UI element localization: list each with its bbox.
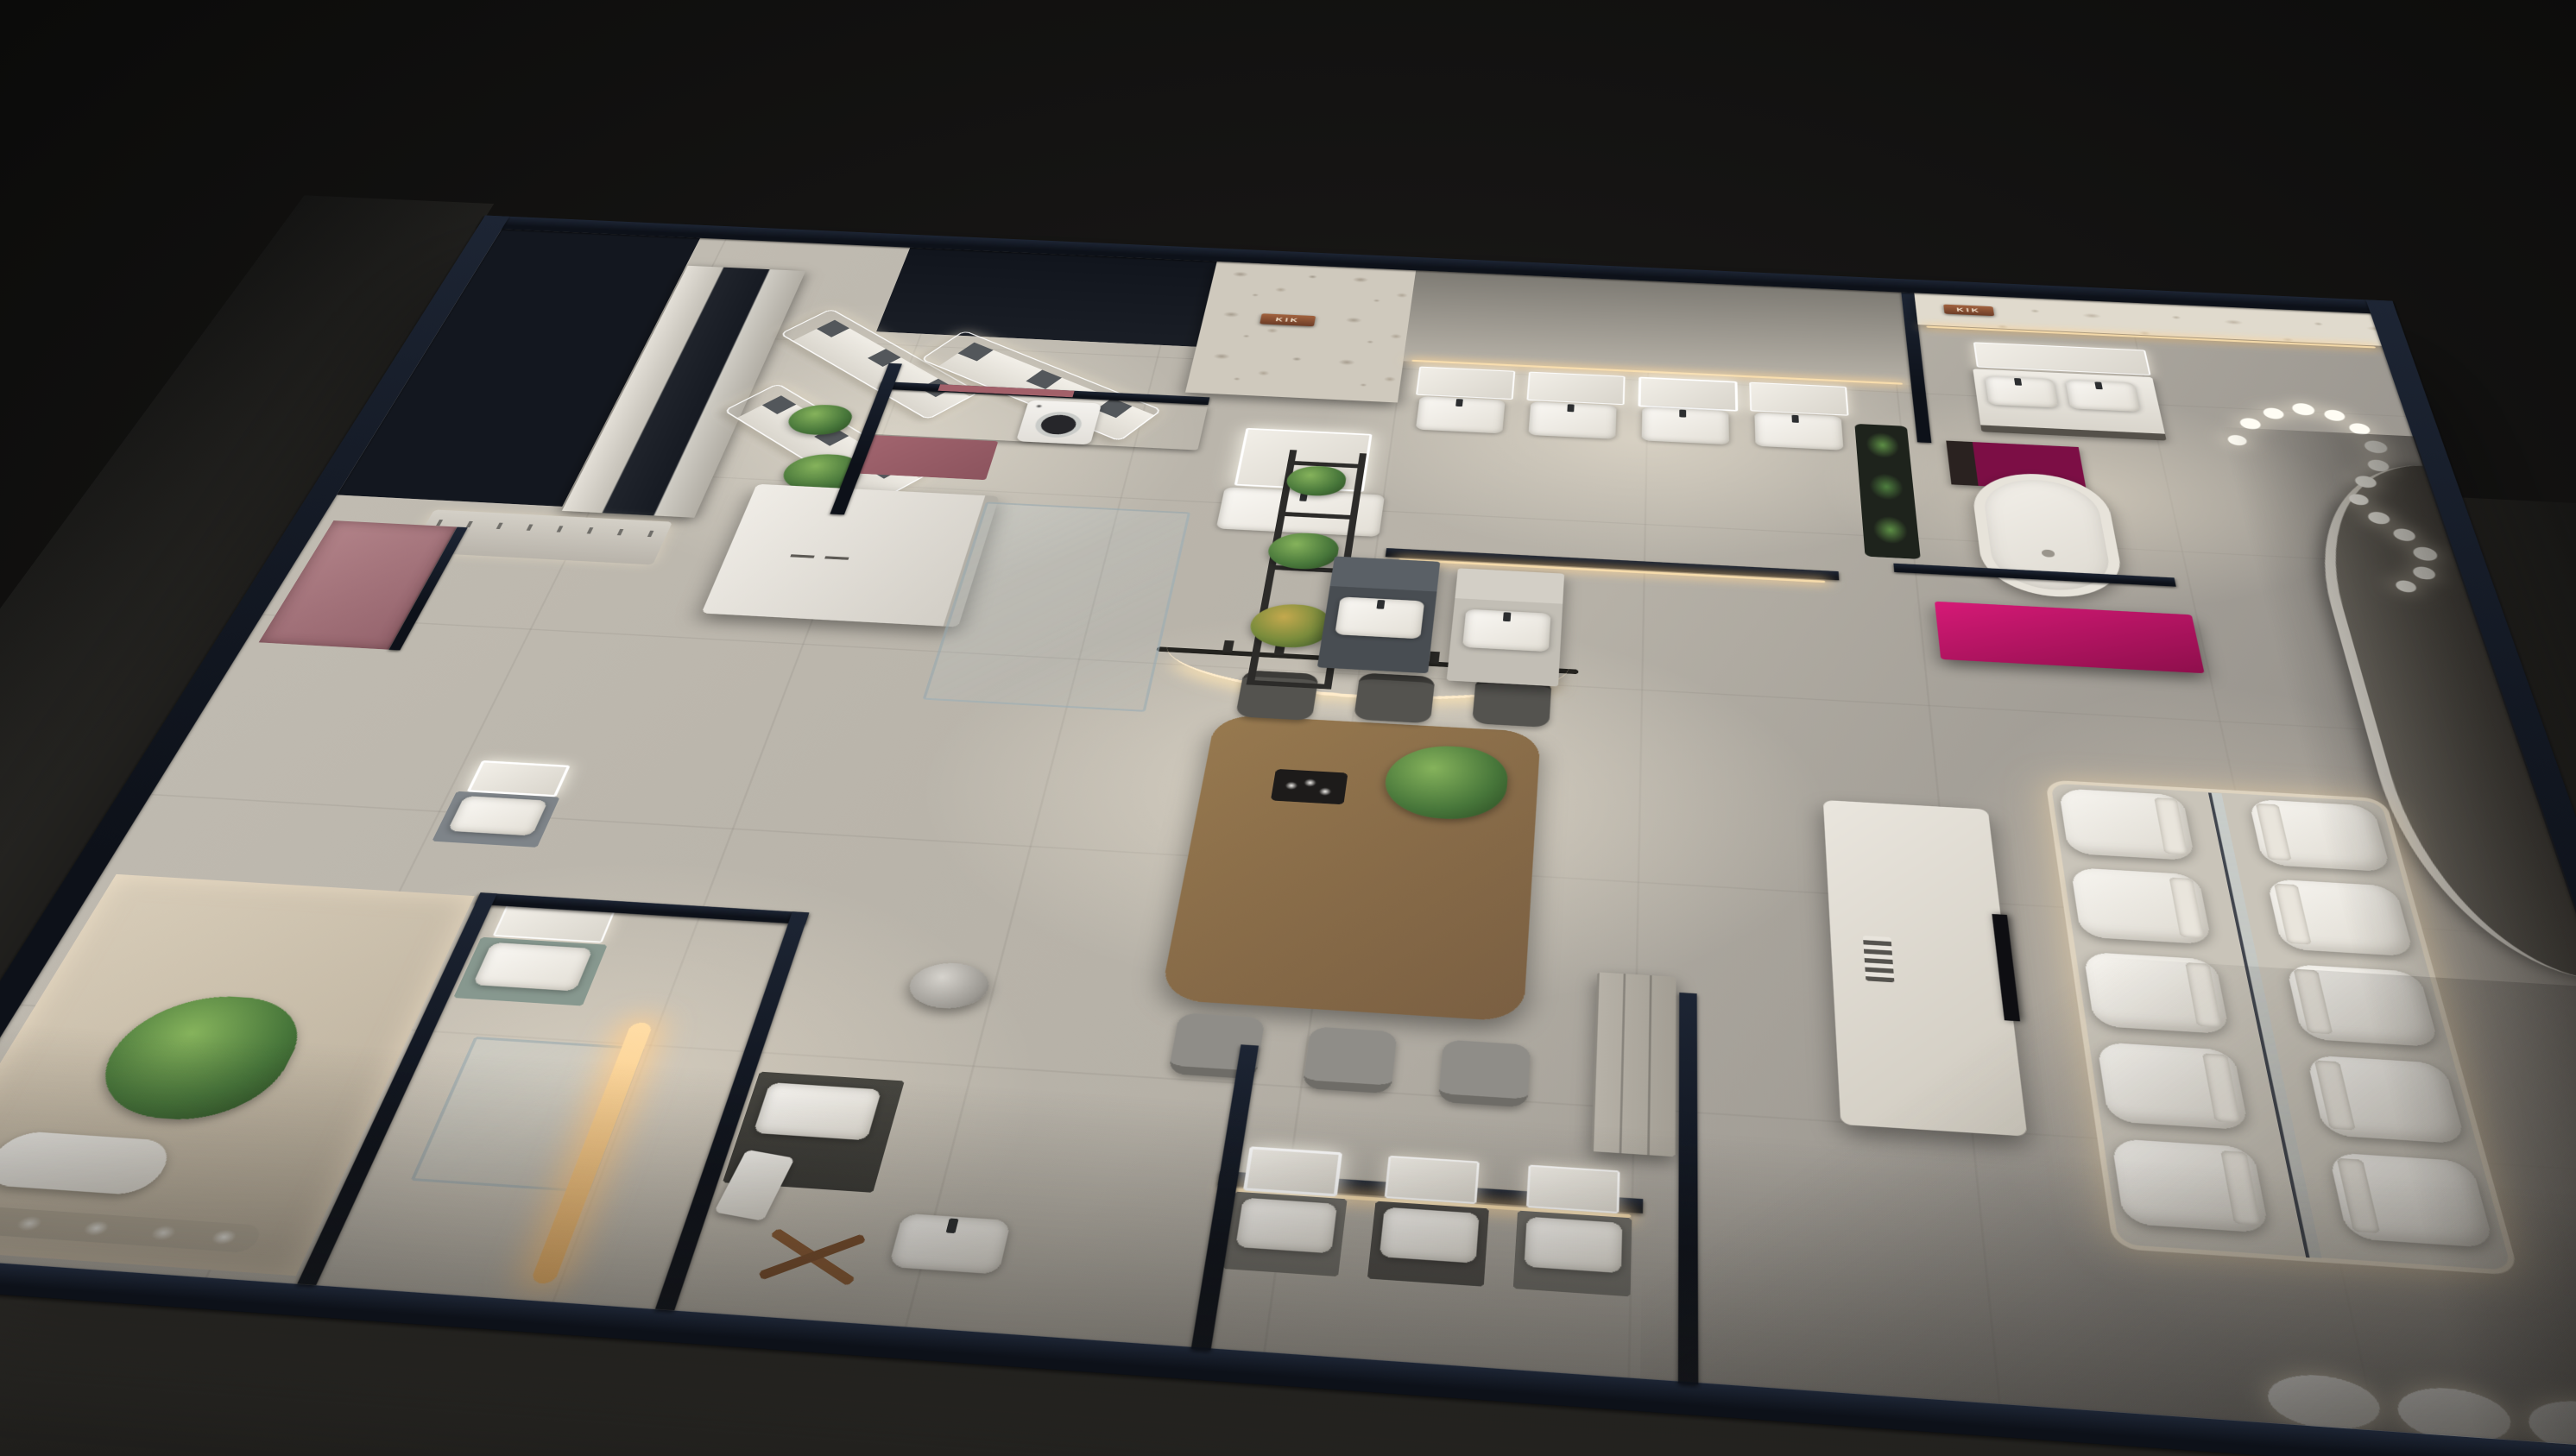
back-vanity-4-mirror bbox=[1749, 381, 1848, 415]
back-vanity-4-faucet bbox=[1791, 414, 1798, 422]
back-vanity-4-basin bbox=[1754, 412, 1843, 450]
back-vanity-2-mirror bbox=[1526, 371, 1625, 405]
washing-machine bbox=[1016, 400, 1102, 444]
showroom-render-stage: KIK KIK bbox=[0, 0, 2576, 1456]
back-vanity-3-mirror bbox=[1638, 376, 1738, 411]
double-vanity-faucet-right bbox=[2094, 381, 2103, 389]
double-vanity-basin-left bbox=[1985, 375, 2058, 407]
kik-sign-utility: KIK bbox=[1260, 313, 1316, 326]
stone-feature-wall bbox=[1185, 261, 1416, 402]
kik-sign-bath-suite: KIK bbox=[1943, 304, 1994, 316]
showroom-floorplan: KIK KIK bbox=[0, 215, 2576, 1456]
double-vanity-faucet-left bbox=[2014, 378, 2022, 386]
double-vanity-basin-right bbox=[2065, 379, 2140, 411]
